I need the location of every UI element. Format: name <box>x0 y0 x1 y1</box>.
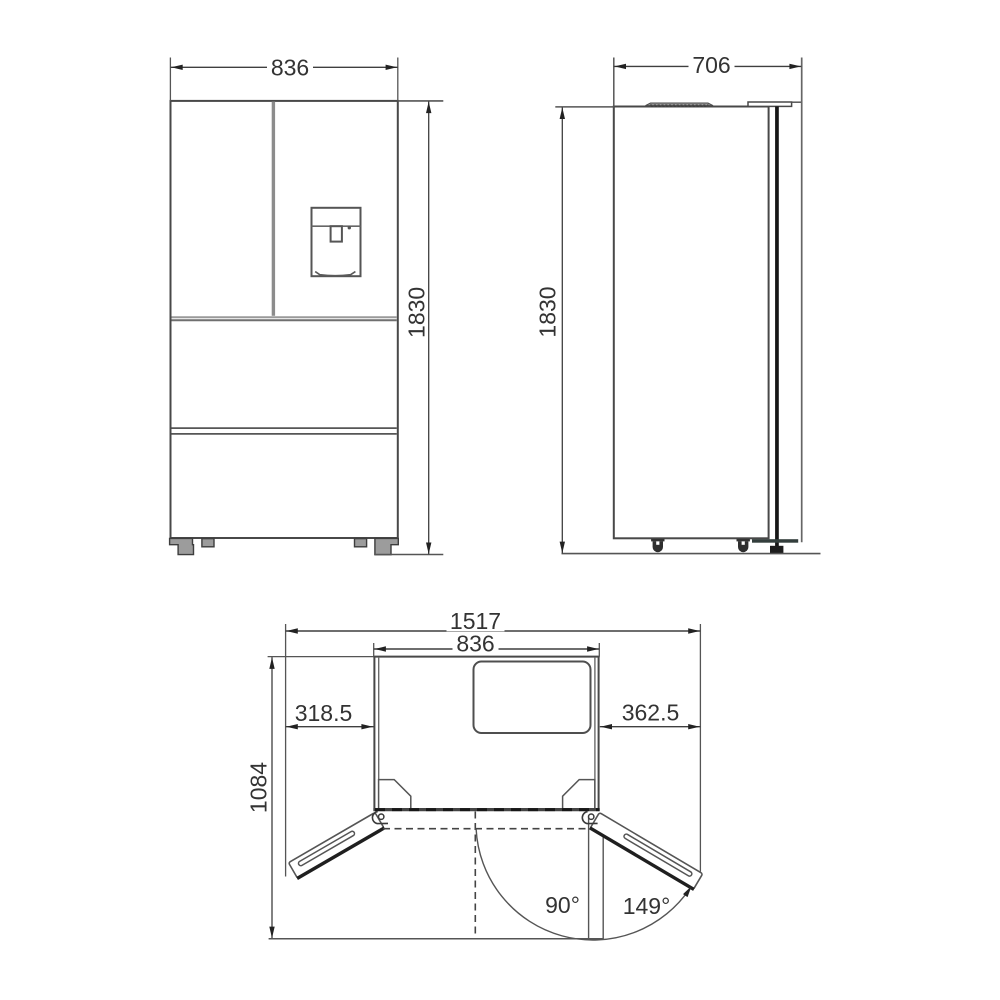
svg-text:1084: 1084 <box>245 762 271 813</box>
svg-text:318.5: 318.5 <box>295 700 353 726</box>
svg-text:1830: 1830 <box>535 286 561 337</box>
svg-text:362.5: 362.5 <box>622 699 680 725</box>
svg-text:90°: 90° <box>545 892 580 918</box>
svg-text:149°: 149° <box>623 893 671 919</box>
svg-text:1830: 1830 <box>403 287 429 338</box>
svg-text:836: 836 <box>456 630 494 656</box>
svg-text:836: 836 <box>271 54 309 80</box>
svg-text:706: 706 <box>692 52 730 78</box>
